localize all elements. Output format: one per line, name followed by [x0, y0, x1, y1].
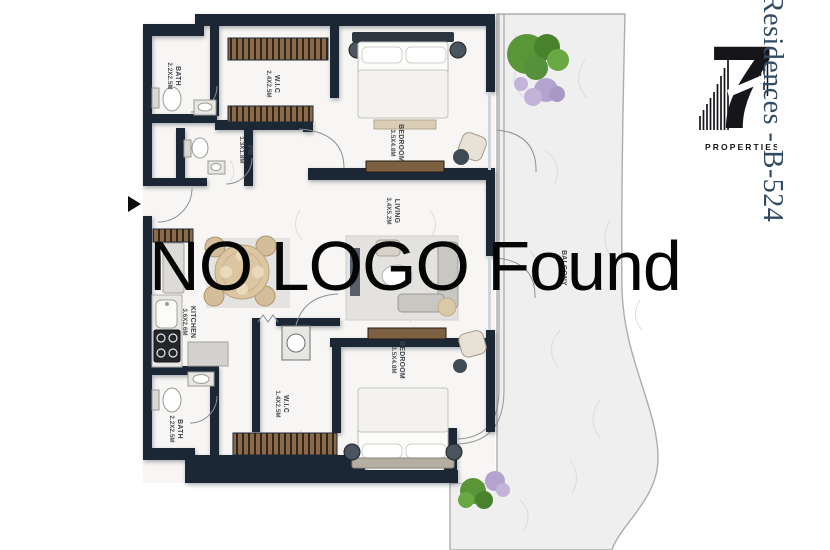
nightstand: [450, 42, 466, 58]
laundry-closet: [282, 326, 310, 360]
terrace-door-glass-1: [488, 92, 491, 170]
toilet: [163, 388, 181, 412]
washing-machine-door: [287, 334, 305, 352]
pillow: [362, 47, 402, 63]
room-dims-bath-1: 2.2X2.5M: [166, 62, 173, 89]
room-label-wic-2: W.I.C: [282, 395, 289, 413]
pillow: [406, 444, 446, 458]
bed-bench: [374, 120, 436, 129]
unit-title: Residences - B-524: [756, 0, 788, 222]
pillow: [406, 47, 446, 63]
toilet-tank: [184, 140, 191, 157]
media-console: [368, 328, 446, 339]
room-dims-bedroom-2: 3.5X4.8M: [390, 346, 397, 373]
room-dims-living: 3.4X5.2M: [385, 197, 392, 224]
side-table: [453, 149, 469, 165]
room-label-kitchen: KITCHEN: [189, 306, 196, 338]
nightstand: [344, 444, 360, 460]
sink: [211, 164, 221, 171]
room-dims-wic-2: 1.4X2.5M: [274, 390, 281, 417]
sink: [198, 103, 212, 111]
bed-headboard: [352, 458, 454, 468]
floorplan-page: BATH 2.2X2.5M W.I.C 2.4X2.5M PR 1.3X1.8M…: [0, 0, 830, 550]
toilet-tank: [152, 390, 159, 410]
room-dims-wic-1: 2.4X2.5M: [265, 70, 272, 97]
sink: [193, 375, 209, 384]
bed-headboard: [352, 32, 454, 42]
room-label-living: LIVING: [393, 199, 400, 223]
nightstand: [446, 444, 462, 460]
duvet: [358, 70, 448, 118]
cabinet: [188, 342, 228, 366]
entrance-arrow-icon: [128, 196, 141, 212]
room-label-bedroom-1: BEDROOM: [397, 124, 404, 162]
duvet: [358, 388, 448, 432]
room-label-bedroom-2: BEDROOM: [398, 341, 405, 379]
side-table: [453, 359, 467, 373]
toilet: [192, 138, 208, 158]
pillow: [362, 444, 402, 458]
room-label-wic-1: W.I.C: [273, 75, 280, 93]
toilet: [163, 87, 181, 111]
room-dims-powder-room: 1.3X1.8M: [238, 136, 245, 163]
room-label-bath-2: BATH: [176, 419, 183, 439]
room-label-powder-room: PR: [246, 145, 253, 155]
room-dims-bath-2: 2.2X2.5M: [168, 415, 175, 442]
toilet-tank: [152, 88, 159, 108]
dresser: [366, 161, 444, 172]
room-label-bath-1: BATH: [174, 66, 181, 86]
room-dims-bedroom-1: 3.5X4.8M: [389, 129, 396, 156]
room-dims-kitchen: 3.6X2.6M: [181, 308, 188, 335]
no-logo-watermark: NO LOGO Found: [0, 226, 830, 306]
